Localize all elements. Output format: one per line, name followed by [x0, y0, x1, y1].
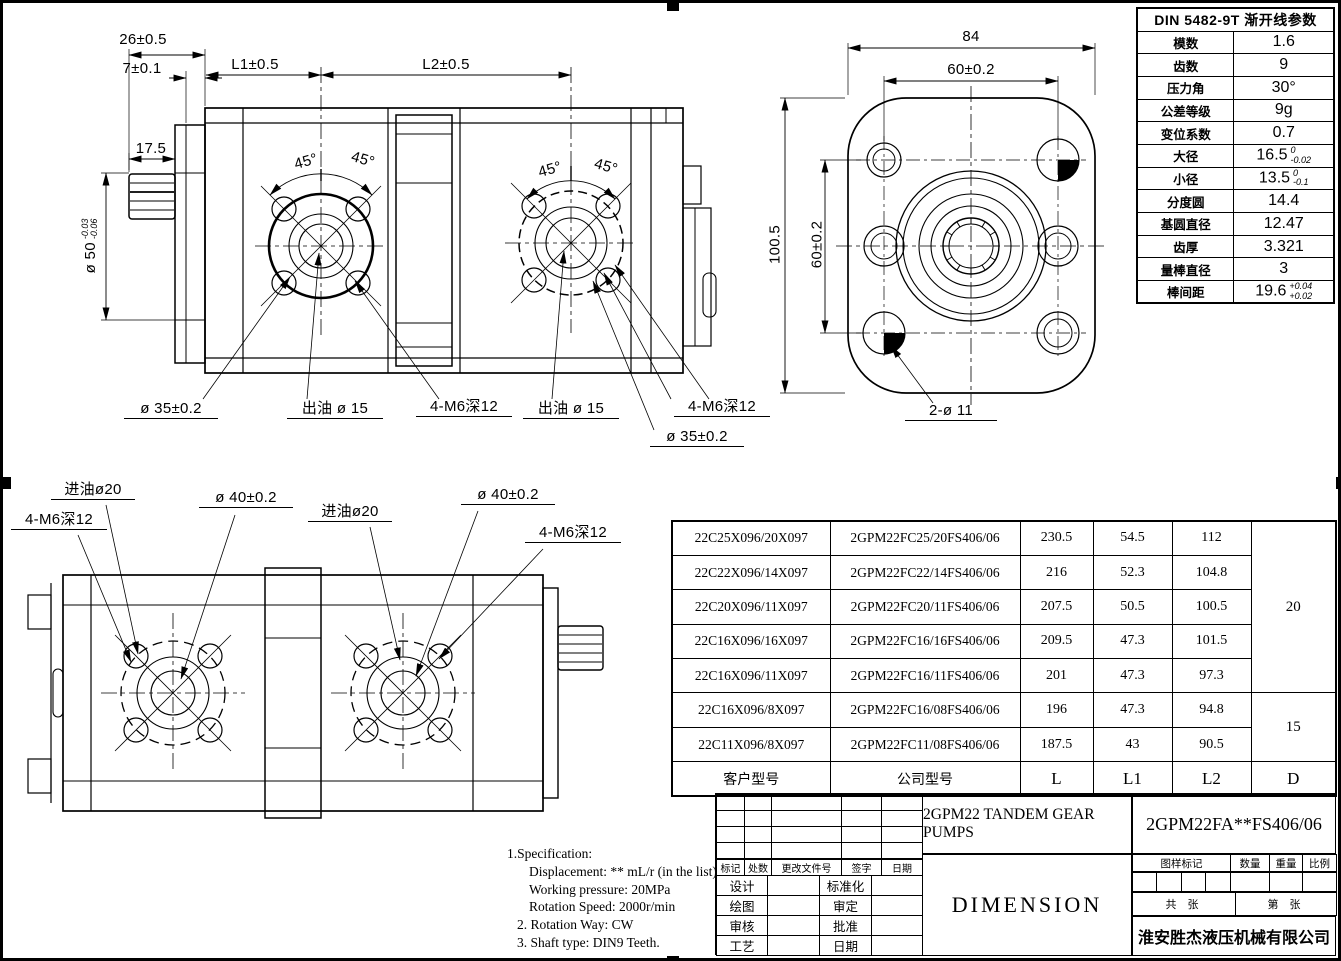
table-row: 22C16X096/16X097 2GPM22FC16/16FS406/06 2… — [672, 624, 1336, 658]
d-value-top: 20 — [1251, 521, 1336, 693]
dim-l1: L1±0.5 — [215, 56, 295, 73]
note-line: Rotation Speed: 2000r/min — [507, 898, 717, 916]
tolerance-stack: 0-0.02 — [1291, 146, 1312, 165]
table-row: 变位系数0.7 — [1137, 122, 1334, 145]
sheet-total: 共 张 — [1133, 893, 1236, 916]
thread-label-d: 4-M6深12 — [525, 524, 621, 543]
din-table-title: DIN 5482-9T 渐开线参数 — [1137, 8, 1334, 31]
thread-label-c: 4-M6深12 — [11, 511, 107, 530]
dim-100-5: 100.5 — [767, 215, 784, 275]
table-row: 齿厚3.321 — [1137, 235, 1334, 258]
table-row: 压力角30° — [1137, 76, 1334, 99]
table-row: 棒间距 19.6+0.04+0.02 — [1137, 281, 1334, 304]
table-row: 22C16X096/8X097 2GPM22FC16/08FS406/06 19… — [672, 693, 1336, 727]
dim-2x11: 2-ø 11 — [905, 402, 997, 421]
revision-rows — [716, 794, 922, 859]
sheet-number: 第 张 — [1236, 893, 1337, 916]
model-table: 22C25X096/20X097 2GPM22FC25/20FS406/06 2… — [671, 520, 1337, 797]
dim-7: 7±0.1 — [106, 60, 178, 77]
revision-header-row: 标记 处数 更改文件号 签字 日期 — [716, 859, 922, 875]
stamp-cells-row — [1132, 872, 1336, 892]
table-row: 分度圆14.4 — [1137, 190, 1334, 213]
part-number: 2GPM22FA**FS406/06 — [1146, 814, 1322, 835]
front-view — [101, 49, 716, 430]
note-line: Displacement: ** mL/r (in the list) — [507, 863, 717, 881]
qty-label: 数量 — [1231, 855, 1270, 872]
tolerance-stack: 0-0.1 — [1293, 169, 1309, 188]
company-name: 淮安胜杰液压机械有限公司 — [1138, 924, 1330, 948]
shaft-diameter-value: ø 50 — [82, 242, 99, 273]
sheet-count-row: 共 张 第 张 — [1132, 892, 1336, 916]
thread-label-a: 4-M6深12 — [416, 398, 512, 417]
face-view — [780, 43, 1106, 405]
thread-label-b: 4-M6深12 — [674, 398, 770, 417]
title-block: 标记 处数 更改文件号 签字 日期 设计标准化 绘图审定 审核批准 工艺日期 2… — [715, 793, 1335, 955]
table-row: 基圆直径12.47 — [1137, 213, 1334, 236]
scale-label: 比例 — [1303, 855, 1337, 872]
specification-notes: 1.Specification: Displacement: ** mL/r (… — [507, 845, 717, 952]
inlet-label-a: 进油ø20 — [51, 481, 135, 500]
outlet-label-b: 出油 ø 15 — [523, 400, 619, 419]
note-line: 1.Specification: — [507, 845, 717, 863]
sheet-title-box: DIMENSION — [922, 854, 1132, 956]
drawing-mark-label: 图样标记 — [1133, 855, 1231, 872]
shaft-tolerance: -0.03 -0.06 — [81, 219, 100, 240]
stamp-header-row: 图样标记 数量 重量 比例 — [1132, 854, 1336, 872]
note-line: 3. Shaft type: DIN9 Teeth. — [507, 934, 717, 952]
dim-40-b: ø 40±0.2 — [461, 486, 555, 505]
table-row: 小径 13.50-0.1 — [1137, 167, 1334, 190]
inlet-label-b: 进油ø20 — [308, 503, 392, 522]
table-row: 大径 16.50-0.02 — [1137, 144, 1334, 167]
outlet-label-a: 出油 ø 15 — [287, 400, 383, 419]
dim-60-top: 60±0.2 — [931, 61, 1011, 78]
sheet-title: DIMENSION — [952, 892, 1102, 918]
dim-84: 84 — [943, 28, 999, 45]
table-row: 公差等级9g — [1137, 99, 1334, 122]
table-header-row: 客户型号 公司型号 L L1 L2 D — [672, 762, 1336, 796]
note-line: 2. Rotation Way: CW — [507, 916, 717, 934]
drawing-sheet: 26±0.5 7±0.1 L1±0.5 L2±0.5 17.5 ø 50 -0.… — [0, 0, 1341, 961]
signature-rows: 设计标准化 绘图审定 审核批准 工艺日期 — [716, 875, 922, 956]
bottom-view — [28, 505, 603, 818]
table-row: 22C16X096/11X097 2GPM22FC16/11FS406/06 2… — [672, 659, 1336, 693]
dim-35-b: ø 35±0.2 — [650, 428, 744, 447]
dim-60-left: 60±0.2 — [809, 213, 826, 277]
note-line: Working pressure: 20MPa — [507, 881, 717, 899]
table-row: 齿数9 — [1137, 54, 1334, 77]
dim-35-a: ø 35±0.2 — [124, 400, 218, 419]
table-row: 模数1.6 — [1137, 31, 1334, 54]
dim-26: 26±0.5 — [103, 31, 183, 48]
product-title: 2GPM22 TANDEM GEAR PUMPS — [923, 806, 1131, 842]
table-row: 22C11X096/8X097 2GPM22FC11/08FS406/06 18… — [672, 727, 1336, 761]
table-row: 量棒直径3 — [1137, 258, 1334, 281]
dim-shaft-diameter: ø 50 -0.03 -0.06 — [75, 206, 105, 286]
d-value-bottom: 15 — [1251, 693, 1336, 762]
weight-label: 重量 — [1270, 855, 1303, 872]
table-row: 22C20X096/11X097 2GPM22FC20/11FS406/06 2… — [672, 590, 1336, 624]
din-spline-table: DIN 5482-9T 渐开线参数 模数1.6 齿数9 压力角30° 公差等级9… — [1136, 7, 1335, 304]
table-row: 22C22X096/14X097 2GPM22FC22/14FS406/06 2… — [672, 555, 1336, 589]
table-row: 22C25X096/20X097 2GPM22FC25/20FS406/06 2… — [672, 521, 1336, 555]
company-box: 淮安胜杰液压机械有限公司 — [1132, 916, 1336, 956]
product-title-box: 2GPM22 TANDEM GEAR PUMPS — [922, 794, 1132, 854]
dim-l2: L2±0.5 — [401, 56, 491, 73]
dim-40-a: ø 40±0.2 — [199, 489, 293, 508]
dim-17-5: 17.5 — [121, 140, 181, 157]
part-number-box: 2GPM22FA**FS406/06 — [1132, 794, 1336, 854]
tolerance-stack: +0.04+0.02 — [1289, 282, 1312, 301]
